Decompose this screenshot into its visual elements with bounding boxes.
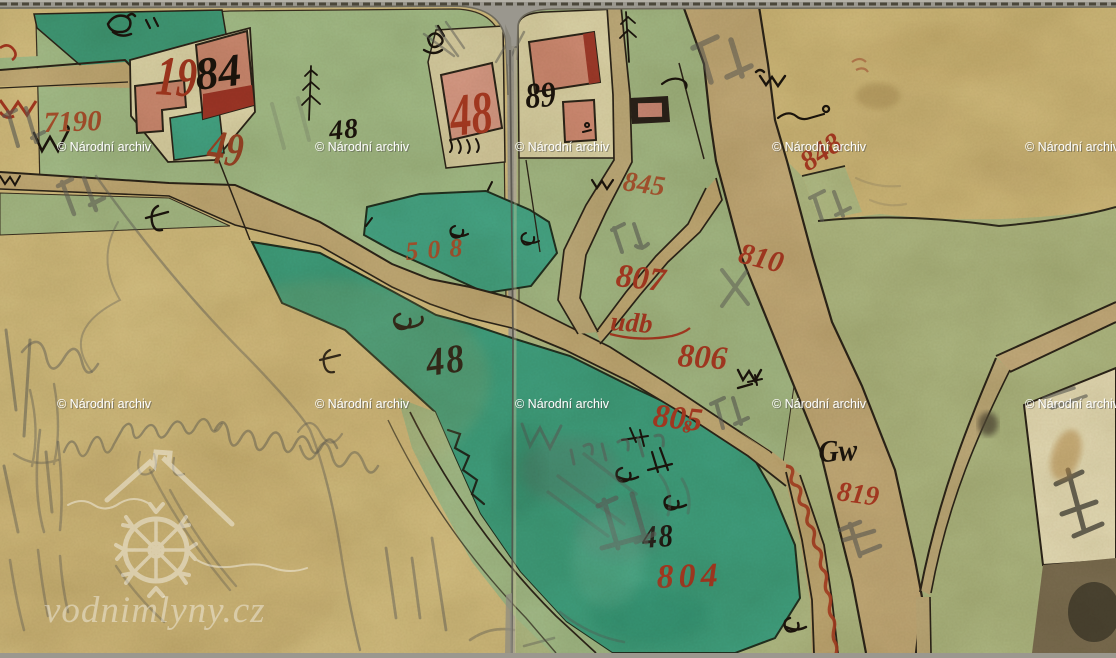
svg-text:© Národní archiv: © Národní archiv (57, 140, 152, 154)
svg-text:© Národní archiv: © Národní archiv (515, 140, 610, 154)
svg-text:© Národní archiv: © Národní archiv (1025, 140, 1116, 154)
svg-text:© Národní archiv: © Národní archiv (57, 397, 152, 411)
svg-text:© Národní archiv: © Národní archiv (1025, 397, 1116, 411)
svg-text:© Národní archiv: © Národní archiv (315, 140, 410, 154)
svg-text:© Národní archiv: © Národní archiv (772, 140, 867, 154)
svg-text:© Národní archiv: © Národní archiv (515, 397, 610, 411)
svg-text:vodnimlyny.cz: vodnimlyny.cz (44, 590, 266, 631)
svg-text:© Národní archiv: © Národní archiv (315, 397, 410, 411)
svg-text:© Národní archiv: © Národní archiv (772, 397, 867, 411)
